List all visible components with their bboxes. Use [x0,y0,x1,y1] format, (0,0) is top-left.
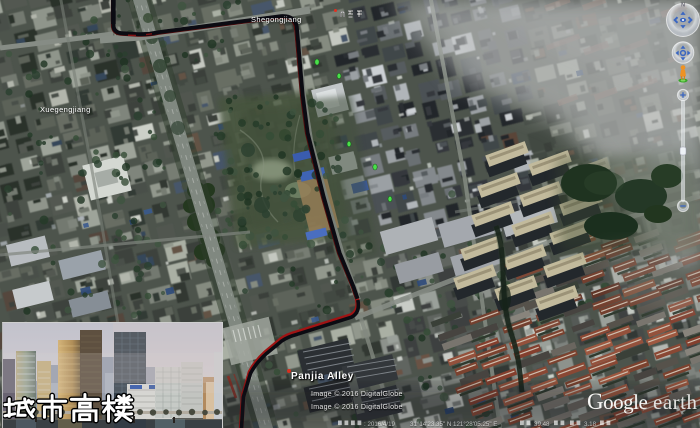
svg-text:: 2016/4/19: : 2016/4/19 [364,421,396,428]
svg-text:39.48: 39.48 [534,421,550,428]
svg-text:3.18: 3.18 [584,421,597,428]
svg-text:N: N [681,3,685,9]
svg-text:31°14'23.35" N 121°28'05.25": 31°14'23.35" N 121°28'05.25" E [410,421,497,428]
